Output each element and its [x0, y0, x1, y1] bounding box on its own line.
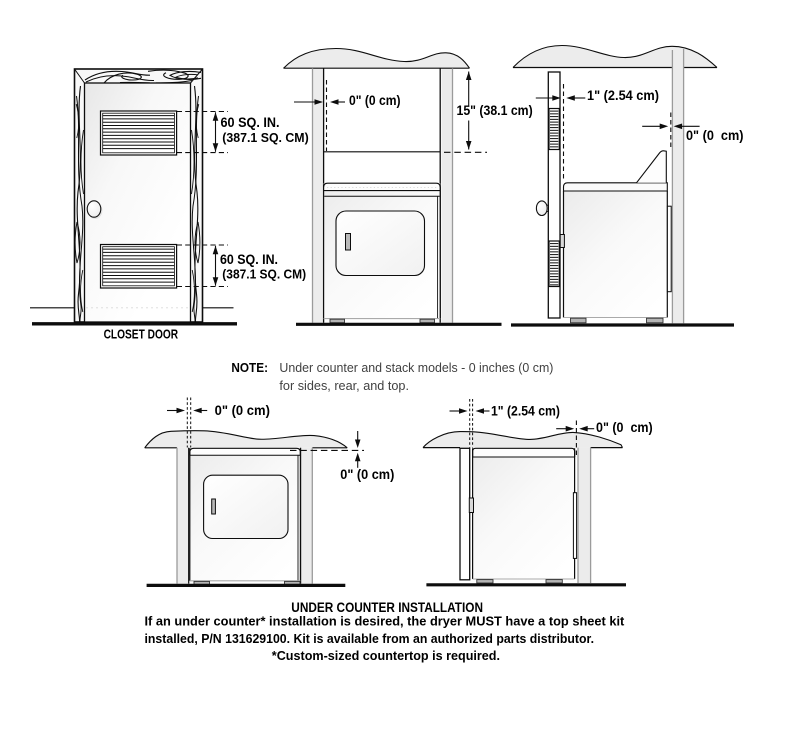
svg-text:0" (0 cm): 0" (0 cm)	[686, 128, 744, 143]
svg-text:If an under counter* installat: If an under counter* installation is des…	[145, 614, 626, 629]
svg-text:(387.1 SQ. CM): (387.1 SQ. CM)	[222, 130, 308, 145]
svg-text:installed, P/N 131629100. Kit: installed, P/N 131629100. Kit is availab…	[145, 631, 595, 646]
svg-text:60 SQ. IN.: 60 SQ. IN.	[220, 252, 278, 267]
svg-text:CLOSET DOOR: CLOSET DOOR	[104, 326, 179, 341]
svg-text:*Custom-sized countertop is re: *Custom-sized countertop is required.	[272, 648, 500, 663]
svg-text:NOTE:: NOTE:	[231, 360, 268, 375]
svg-text:Under counter and stack models: Under counter and stack models - 0 inche…	[279, 361, 553, 375]
svg-text:60 SQ. IN.: 60 SQ. IN.	[221, 115, 280, 130]
svg-text:0" (0 cm): 0" (0 cm)	[349, 93, 401, 108]
svg-text:15" (38.1 cm): 15" (38.1 cm)	[457, 103, 533, 118]
svg-text:(387.1 SQ. CM): (387.1 SQ. CM)	[222, 267, 306, 282]
svg-text:0" (0 cm): 0" (0 cm)	[215, 403, 270, 418]
svg-text:0" (0 cm): 0" (0 cm)	[596, 420, 653, 435]
svg-text:1" (2.54 cm): 1" (2.54 cm)	[491, 403, 560, 418]
svg-text:0" (0 cm): 0" (0 cm)	[340, 467, 394, 482]
svg-text:1" (2.54 cm): 1" (2.54 cm)	[587, 88, 659, 103]
svg-text:for sides, rear, and top.: for sides, rear, and top.	[279, 379, 409, 393]
